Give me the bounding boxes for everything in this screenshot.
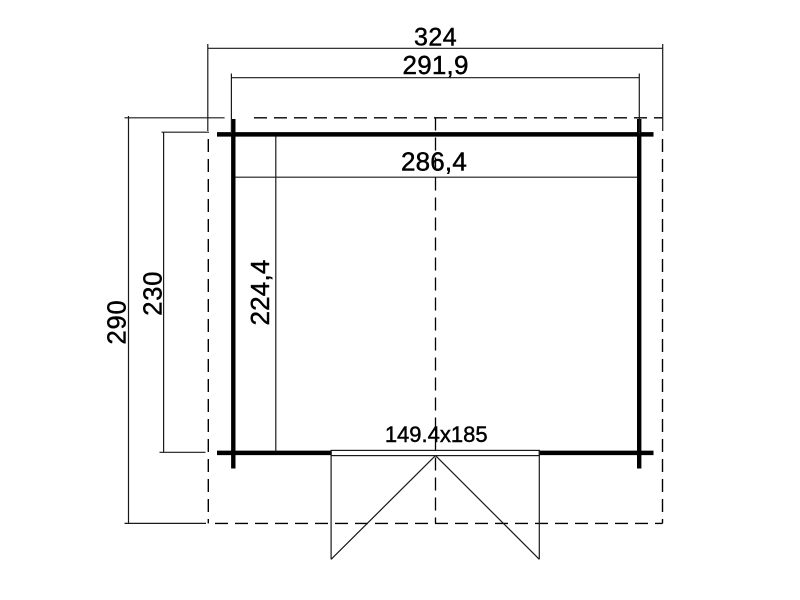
svg-text:290: 290 [104,300,132,345]
svg-text:291,9: 291,9 [403,50,469,80]
svg-text:286,4: 286,4 [401,147,467,177]
svg-text:224,4: 224,4 [245,259,275,325]
svg-text:324: 324 [414,24,457,52]
svg-text:149.4x185: 149.4x185 [385,422,488,447]
svg-text:230: 230 [140,271,168,316]
